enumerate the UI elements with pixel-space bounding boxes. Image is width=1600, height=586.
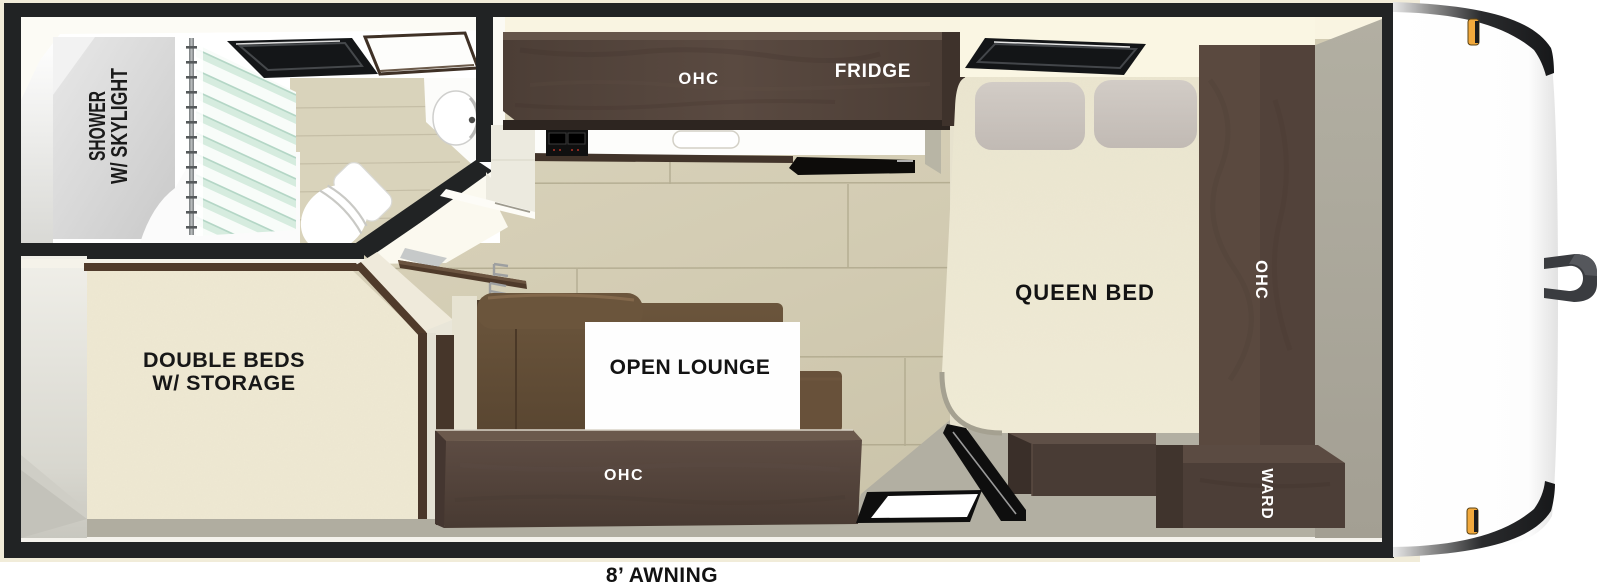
svg-text:W/ STORAGE: W/ STORAGE	[152, 371, 295, 395]
svg-text:QUEEN BED: QUEEN BED	[1015, 280, 1155, 305]
svg-text:OHC: OHC	[1252, 260, 1270, 300]
svg-text:FRIDGE: FRIDGE	[835, 61, 912, 82]
svg-text:OPEN LOUNGE: OPEN LOUNGE	[610, 356, 771, 379]
svg-text:OHC: OHC	[678, 70, 719, 88]
svg-text:OHC: OHC	[604, 467, 644, 484]
svg-text:DOUBLE BEDS: DOUBLE BEDS	[143, 348, 305, 372]
svg-text:WARD: WARD	[1258, 468, 1275, 519]
svg-text:W/ SKYLIGHT: W/ SKYLIGHT	[106, 68, 132, 184]
svg-text:8’ AWNING: 8’ AWNING	[606, 564, 718, 586]
